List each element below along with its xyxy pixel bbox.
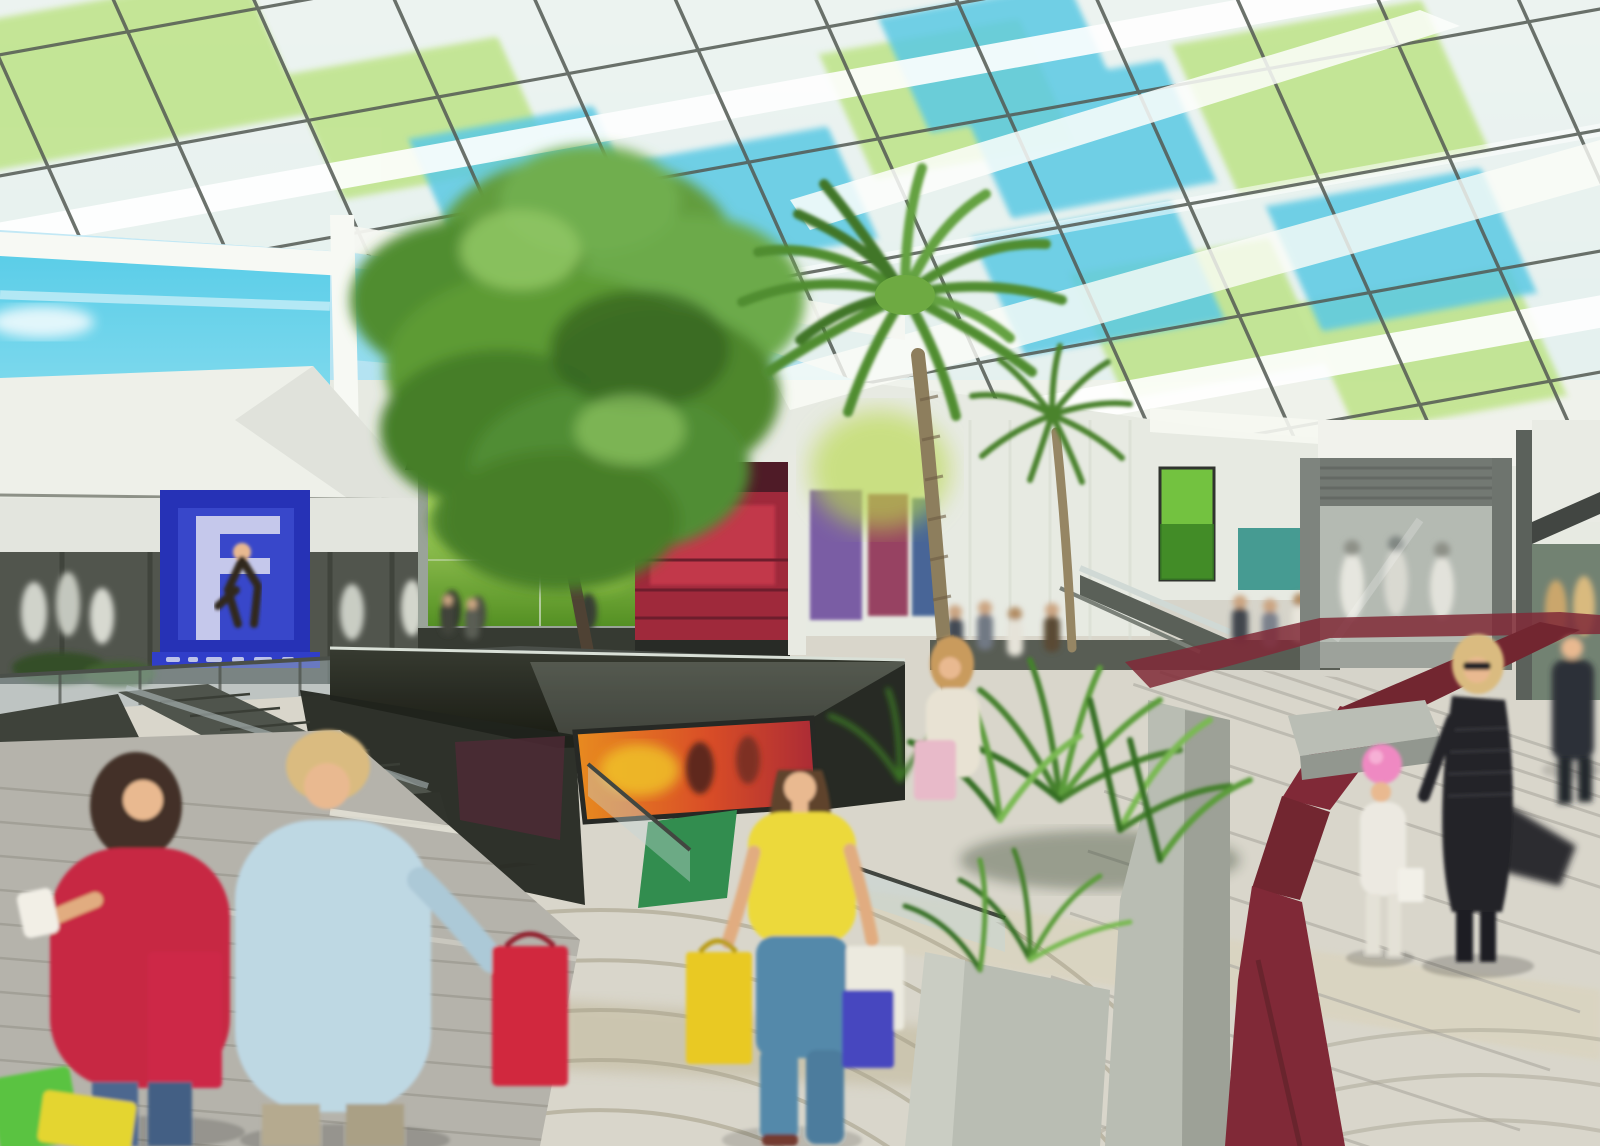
mall-rendering-image: Artist's impression of a pedestrianised … — [0, 0, 1600, 1146]
mall-rendering-canvas — [0, 0, 1600, 1146]
atmosphere-wash — [0, 0, 1600, 1146]
